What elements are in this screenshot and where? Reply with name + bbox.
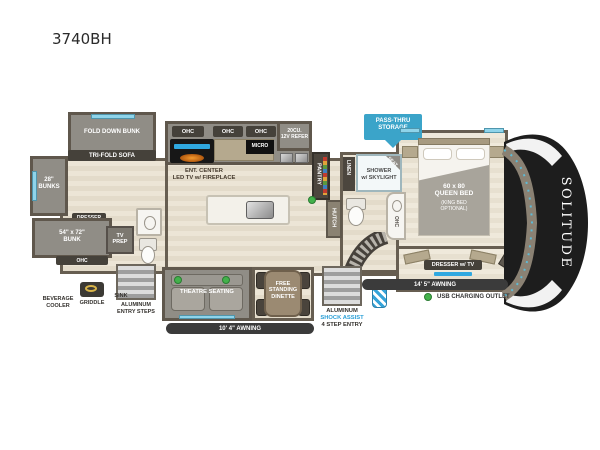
- micro-label: MICRO: [246, 144, 274, 150]
- toilet: [348, 206, 364, 226]
- ohc-bar-bunkroom: OHC: [56, 256, 108, 265]
- usb-outlet-theatre-left: [174, 276, 182, 284]
- pantry-label: PANTRY: [315, 163, 321, 185]
- king-option-label: (KING BED OPTIONAL): [424, 201, 484, 213]
- bath-sink: [392, 200, 402, 212]
- island-sink: [246, 201, 274, 219]
- theatre-label: THEATRE SEATING: [167, 289, 247, 296]
- window: [484, 128, 504, 133]
- dinette-label: FREE STANDING DINETTE: [266, 281, 300, 300]
- bedroom-tv: [434, 272, 472, 276]
- tv-prep-label: TV PREP: [108, 233, 132, 246]
- refrigerator: 20CU. 12V REFER: [277, 121, 312, 151]
- tv-prep-box: TV PREP: [106, 226, 134, 254]
- ohc-badge-1: OHC: [172, 126, 204, 137]
- linen-cabinet: LINEN: [343, 157, 355, 191]
- pillow-left: [423, 148, 452, 160]
- microwave: MICRO: [246, 140, 274, 154]
- griddle-burner: [85, 285, 97, 292]
- nightstand-left: [402, 146, 418, 158]
- dinette-table: FREE STANDING DINETTE: [264, 270, 302, 317]
- page-title: 3740BH: [52, 30, 112, 48]
- fireplace-glow: [180, 154, 204, 162]
- bunk-54-label: 54" x 72" BUNK: [41, 230, 103, 244]
- shower: SEAT SHOWER w/ SKYLIGHT: [356, 154, 402, 192]
- pillow-right: [456, 148, 485, 160]
- rear-toilet: [141, 246, 155, 264]
- range-burner-right: [295, 153, 308, 163]
- ohc-badge-3: OHC: [246, 126, 276, 137]
- refer-label: 20CU. 12V REFER: [280, 129, 309, 141]
- bunks-28-label: 28" BUNKS: [35, 177, 63, 191]
- kitchen-island: [206, 195, 290, 225]
- floorplan-canvas: 3740BH FOLD DOWN BUNK TRI-FOLD SOFA 28" …: [0, 0, 600, 450]
- queen-bed-label: 60 x 80 QUEEN BED: [424, 183, 484, 198]
- bath-ohc-label: OHC: [393, 216, 399, 227]
- window: [91, 114, 135, 119]
- sink-label: SINK: [106, 293, 136, 300]
- usb-legend-dot: [424, 293, 432, 301]
- usb-legend-label: USB CHARGING OUTLET: [437, 294, 510, 300]
- pantry-shelves: [323, 157, 327, 195]
- awning-right: 14' 5" AWNING: [362, 279, 508, 290]
- range-burner-left: [280, 153, 293, 163]
- rear-bath-vanity: [136, 208, 162, 236]
- entry-label-2: SHOCK ASSIST: [306, 315, 378, 321]
- front-cap: SOLITUDE: [502, 126, 592, 320]
- fold-down-bunk-label: FOLD DOWN BUNK: [71, 129, 153, 136]
- fold-down-bunk-slide: FOLD DOWN BUNK: [68, 112, 156, 154]
- usb-outlet-theatre-right: [222, 276, 230, 284]
- headboard: [418, 138, 490, 145]
- usb-outlet-kitchen: [308, 196, 316, 204]
- ohc-badge-2: OHC: [213, 126, 243, 137]
- entry-label-1: ALUMINUM: [306, 308, 378, 315]
- entry-label-3: 4 STEP ENTRY: [306, 322, 378, 329]
- main-entry-steps: [322, 266, 362, 306]
- tri-fold-sofa: TRI-FOLD SOFA: [68, 150, 156, 161]
- rear-bath-sink: [144, 216, 156, 230]
- pass-thru-callout: PASS-THRU STORAGE: [364, 114, 422, 140]
- theatre-slide: THEATRE SEATING: [162, 267, 252, 321]
- dresser-tv-badge: DRESSER w/ TV: [424, 260, 482, 270]
- bunks-28-slide: 28" BUNKS: [30, 156, 68, 216]
- bunk-54-slide: 54" x 72" BUNK: [32, 218, 112, 258]
- linen-label: LINEN: [344, 160, 350, 175]
- pantry-cabinet: PANTRY: [312, 152, 330, 200]
- entertainment-center: [170, 139, 214, 163]
- griddle-label: GRIDDLE: [72, 300, 112, 307]
- hutch-label: HUTCH: [330, 208, 336, 227]
- brand-text: SOLITUDE: [558, 177, 573, 270]
- awning-left: 10' 4" AWNING: [166, 323, 314, 334]
- queen-bed: 60 x 80 QUEEN BED (KING BED OPTIONAL): [418, 140, 490, 236]
- shower-label: SHOWER w/ SKYLIGHT: [359, 168, 399, 181]
- ent-center-label: ENT. CENTER LED TV w/ FIREPLACE: [156, 168, 252, 182]
- window: [179, 315, 235, 319]
- griddle-icon: [80, 282, 104, 297]
- tv-screen: [174, 144, 210, 149]
- window: [400, 128, 420, 133]
- callout-pointer: [385, 140, 401, 148]
